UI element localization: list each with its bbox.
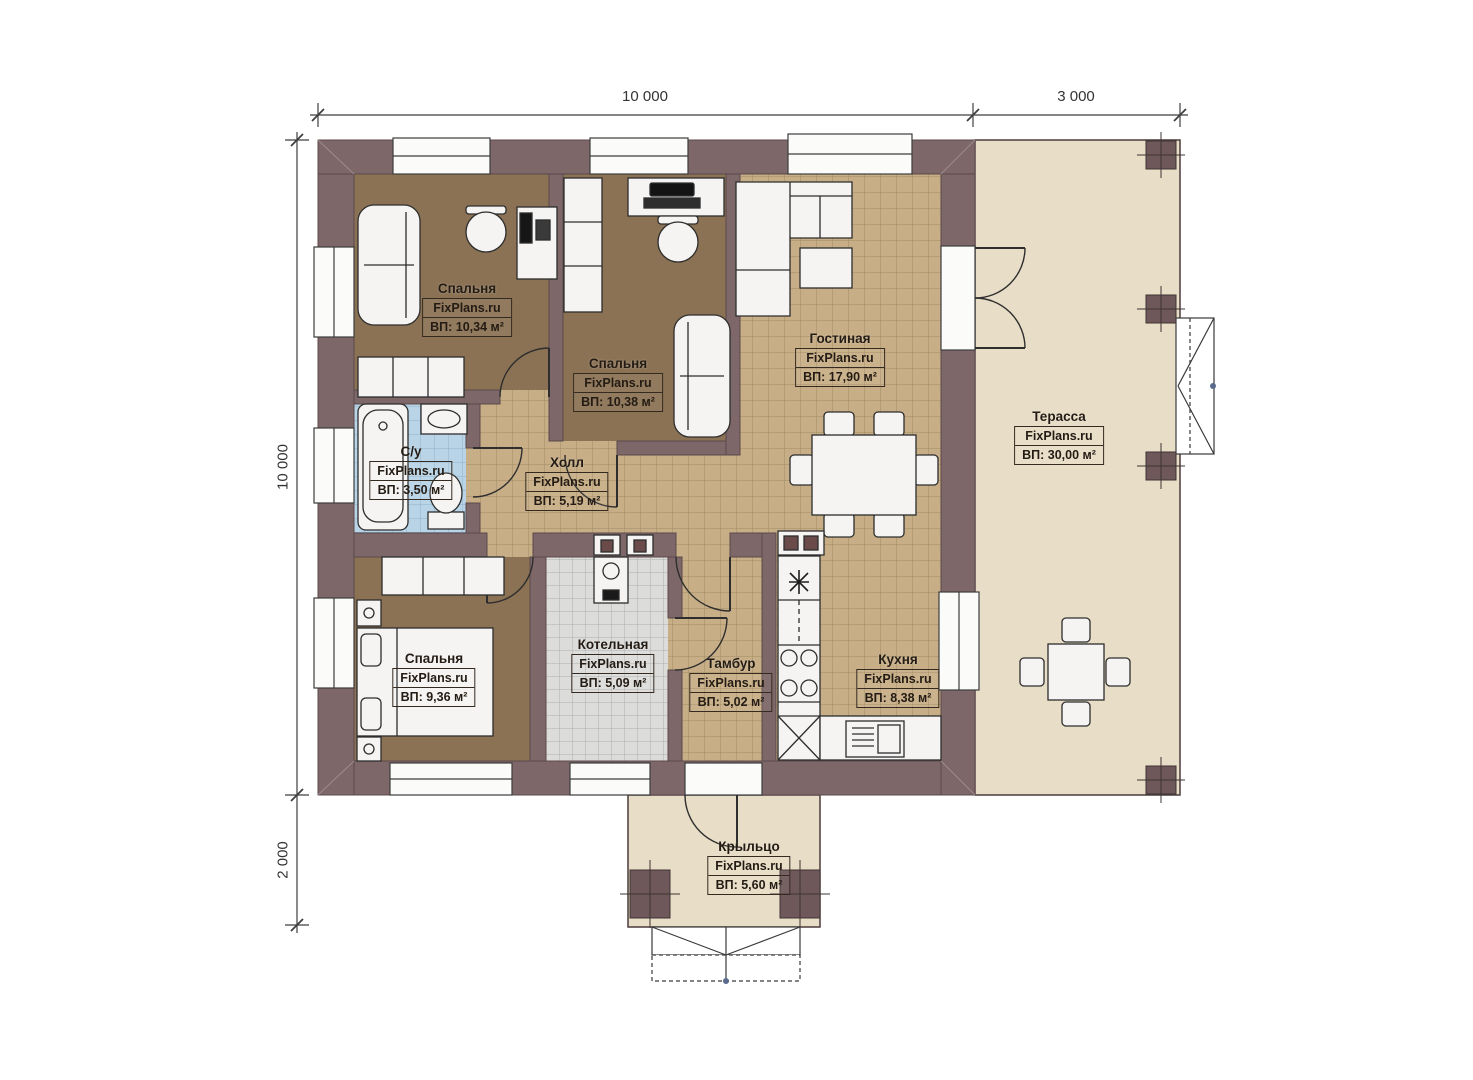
room-name: Кухня (856, 652, 939, 667)
watermark-text: FixPlans.ru (526, 473, 607, 491)
dimension-top-terrace: 3 000 (1057, 88, 1095, 105)
room-info-box: FixPlans.ru ВП: 5,02 м² (689, 673, 772, 712)
room-area: ВП: 30,00 м² (1015, 445, 1103, 464)
room-area: ВП: 5,02 м² (690, 692, 771, 711)
watermark-text: FixPlans.ru (857, 670, 938, 688)
room-label-kitchen: Кухня FixPlans.ru ВП: 8,38 м² (856, 652, 939, 708)
room-label-hall: Холл FixPlans.ru ВП: 5,19 м² (525, 455, 608, 511)
floor-plan-drawing (0, 0, 1473, 1080)
room-area: ВП: 10,34 м² (423, 317, 511, 336)
room-label-bedroom-2: Спальня FixPlans.ru ВП: 10,38 м² (573, 356, 663, 412)
room-area: ВП: 17,90 м² (796, 367, 884, 386)
room-info-box: FixPlans.ru ВП: 3,50 м² (369, 461, 452, 500)
room-label-porch: Крыльцо FixPlans.ru ВП: 5,60 м² (707, 839, 790, 895)
room-name: Тамбур (689, 656, 772, 671)
watermark-text: FixPlans.ru (708, 857, 789, 875)
room-name: Спальня (573, 356, 663, 371)
watermark-text: FixPlans.ru (423, 299, 511, 317)
terrace-steps-icon (1176, 318, 1216, 454)
room-area: ВП: 8,38 м² (857, 688, 938, 707)
watermark-text: FixPlans.ru (1015, 427, 1103, 445)
watermark-text: FixPlans.ru (796, 349, 884, 367)
room-name: Спальня (422, 281, 512, 296)
room-name: Терасса (1014, 409, 1104, 424)
room-info-box: FixPlans.ru ВП: 17,90 м² (795, 348, 885, 387)
floor-plan-page: 10 000 3 000 10 000 2 000 Спальня FixPla… (0, 0, 1473, 1080)
room-area: ВП: 10,38 м² (574, 392, 662, 411)
room-info-box: FixPlans.ru ВП: 5,09 м² (571, 654, 654, 693)
room-area: ВП: 3,50 м² (370, 480, 451, 499)
room-label-terrace: Терасса FixPlans.ru ВП: 30,00 м² (1014, 409, 1104, 465)
watermark-text: FixPlans.ru (690, 674, 771, 692)
room-info-box: FixPlans.ru ВП: 30,00 м² (1014, 426, 1104, 465)
room-name: Крыльцо (707, 839, 790, 854)
room-label-living: Гостиная FixPlans.ru ВП: 17,90 м² (795, 331, 885, 387)
room-label-bedroom-3: Спальня FixPlans.ru ВП: 9,36 м² (392, 651, 475, 707)
watermark-text: FixPlans.ru (574, 374, 662, 392)
room-name: Гостиная (795, 331, 885, 346)
room-label-boiler: Котельная FixPlans.ru ВП: 5,09 м² (571, 637, 654, 693)
room-name: Котельная (571, 637, 654, 652)
room-label-tambour: Тамбур FixPlans.ru ВП: 5,02 м² (689, 656, 772, 712)
room-label-bathroom: С/у FixPlans.ru ВП: 3,50 м² (369, 444, 452, 500)
room-area: ВП: 9,36 м² (393, 687, 474, 706)
room-info-box: FixPlans.ru ВП: 10,34 м² (422, 298, 512, 337)
room-info-box: FixPlans.ru ВП: 9,36 м² (392, 668, 475, 707)
watermark-text: FixPlans.ru (393, 669, 474, 687)
dimension-left-height: 10 000 (275, 444, 292, 490)
room-name: Холл (525, 455, 608, 470)
room-info-box: FixPlans.ru ВП: 8,38 м² (856, 669, 939, 708)
room-info-box: FixPlans.ru ВП: 10,38 м² (573, 373, 663, 412)
room-name: С/у (369, 444, 452, 459)
room-area: ВП: 5,60 м² (708, 875, 789, 894)
room-label-bedroom-1: Спальня FixPlans.ru ВП: 10,34 м² (422, 281, 512, 337)
porch-steps-icon (652, 927, 800, 984)
dimension-top-width: 10 000 (622, 88, 668, 105)
dimension-left-porch: 2 000 (275, 841, 292, 879)
room-area: ВП: 5,19 м² (526, 491, 607, 510)
room-area: ВП: 5,09 м² (572, 673, 653, 692)
room-name: Спальня (392, 651, 475, 666)
watermark-text: FixPlans.ru (370, 462, 451, 480)
room-info-box: FixPlans.ru ВП: 5,60 м² (707, 856, 790, 895)
watermark-text: FixPlans.ru (572, 655, 653, 673)
room-info-box: FixPlans.ru ВП: 5,19 м² (525, 472, 608, 511)
